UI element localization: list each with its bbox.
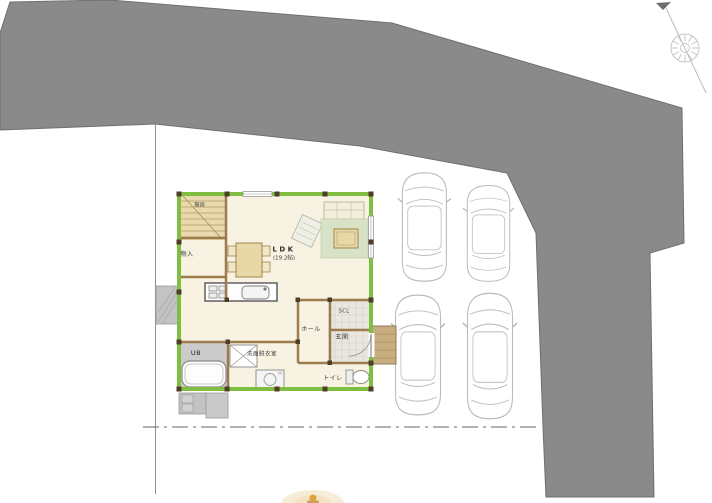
logo-mark (281, 490, 345, 503)
toilet-fixture (346, 370, 369, 384)
equipment-pads-bottom (179, 393, 228, 418)
sink (242, 286, 269, 299)
site-floor-plan-drawing (0, 0, 712, 503)
stairs-floor (180, 195, 226, 240)
car-outline-3 (391, 295, 445, 415)
sofa (324, 202, 364, 219)
window-right (369, 216, 374, 258)
kitchen-counter (205, 283, 277, 301)
entry-porch (372, 326, 396, 364)
car-outline-2 (463, 186, 514, 282)
vanity (230, 345, 257, 367)
equipment-pad-left (156, 286, 180, 324)
site-plan-image: 階段 物入 LDK (19.2帖) ホール SCL 玄関 トイレ 洗面脱衣室 U… (0, 0, 712, 503)
washing-machine (256, 370, 284, 389)
rug-table (334, 229, 358, 248)
car-outline-1 (398, 173, 451, 281)
compass-icon (656, 2, 706, 93)
window-top (243, 192, 272, 197)
parking-cars (391, 173, 517, 419)
bathtub (182, 361, 226, 387)
dining-table (236, 243, 262, 277)
car-outline-4 (463, 293, 517, 418)
